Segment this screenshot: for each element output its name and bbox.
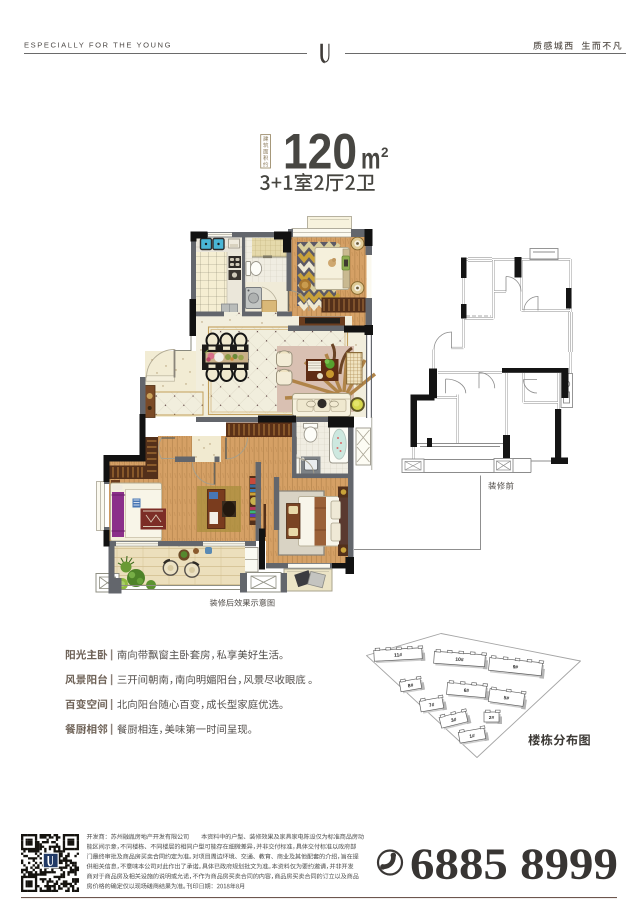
svg-text:6#: 6#: [463, 688, 469, 694]
svg-text:2: 2: [381, 145, 389, 160]
svg-text:11#: 11#: [394, 652, 402, 658]
svg-text:ESPECIALLY FOR THE YOUNG: ESPECIALLY FOR THE YOUNG: [24, 41, 172, 50]
svg-text:120: 120: [283, 123, 357, 180]
svg-text:5#: 5#: [503, 695, 509, 702]
svg-text:10#: 10#: [455, 657, 464, 664]
svg-text:m: m: [361, 143, 381, 176]
svg-text:6885 8999: 6885 8999: [410, 840, 618, 889]
svg-text:9#: 9#: [512, 664, 518, 671]
svg-text:2#: 2#: [489, 715, 495, 721]
